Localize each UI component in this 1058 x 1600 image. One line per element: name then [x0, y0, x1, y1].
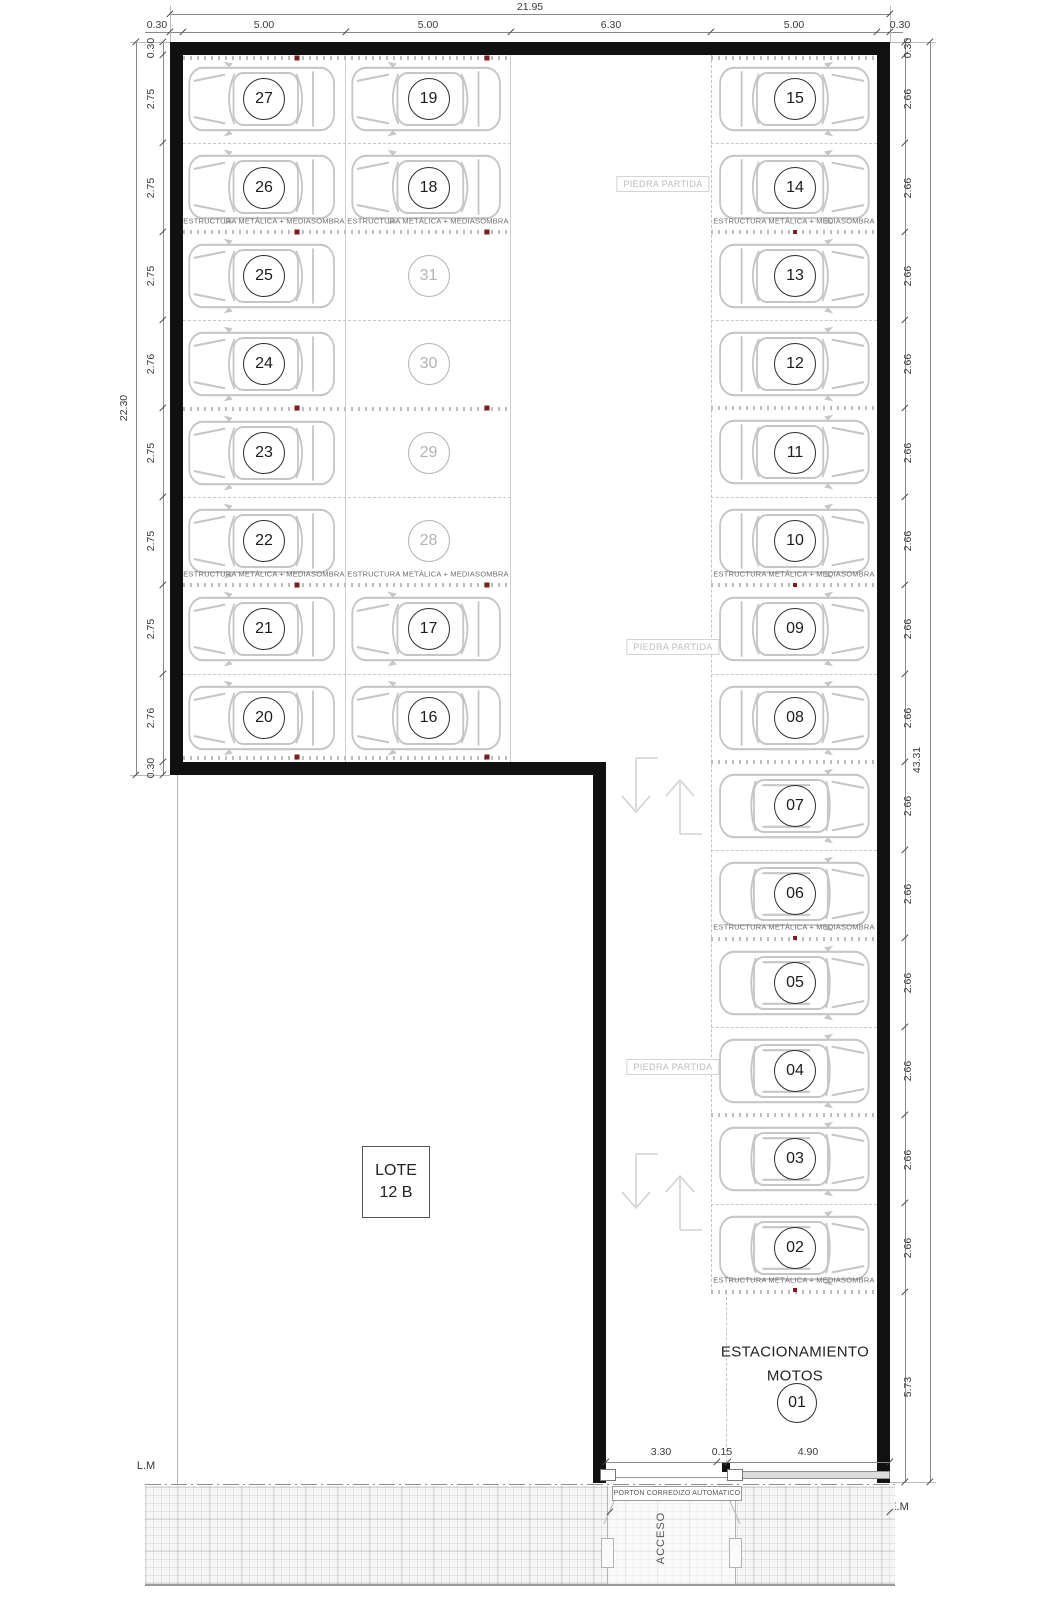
- stall-number-11: 11: [774, 432, 816, 474]
- sidewalk: [145, 1486, 895, 1586]
- parking-stall-05: 05: [711, 939, 877, 1027]
- stall-separator: [183, 674, 511, 675]
- parking-stall-16: 16: [346, 674, 511, 762]
- stall-number-14: 14: [774, 167, 816, 209]
- acceso-label: ACCESO: [655, 1512, 667, 1564]
- dim-label-overall-right: 43.31: [911, 747, 923, 773]
- stall-separator: [183, 320, 511, 321]
- stall-separator: [711, 674, 877, 675]
- lote-label-line1: LOTE: [363, 1160, 429, 1182]
- motos-left-line: [726, 1292, 727, 1462]
- dim-label-overall-left: 22.30: [118, 395, 130, 421]
- dim-label-overall-width: 21.95: [517, 1, 543, 13]
- dim-label: 2.75: [145, 177, 157, 197]
- dim-label-motos-height: 5.73: [902, 1377, 914, 1397]
- column-post: [295, 230, 300, 235]
- stall-number-12: 12: [774, 343, 816, 385]
- column-post: [295, 755, 300, 760]
- parking-stall-29: 29: [346, 409, 511, 497]
- parking-stall-07: 07: [711, 762, 877, 850]
- dim-line-left-overall: [136, 42, 137, 775]
- shade-strip: [183, 756, 511, 760]
- parking-stall-04: 04: [711, 1027, 877, 1115]
- dim-label: 2.66: [902, 1238, 914, 1258]
- dim-label: 5.00: [254, 19, 274, 31]
- dim-label: 2.75: [145, 619, 157, 639]
- lote-label-line2: 12 B: [363, 1182, 429, 1204]
- stall-number-28: 28: [408, 520, 450, 562]
- shade-strip: [183, 230, 511, 234]
- column-post: [793, 936, 797, 940]
- parking-floor-plan: 21.95 0.30 5.00 5.00 6.30 5.00 0.30 22.3…: [0, 0, 1058, 1600]
- parking-stall-21: 21: [183, 585, 345, 673]
- dim-label: 0.30: [145, 758, 157, 778]
- column-post: [295, 406, 300, 411]
- parking-stall-03: 03: [711, 1115, 877, 1203]
- dim-label: 5.00: [418, 19, 438, 31]
- dim-label: 2.75: [145, 442, 157, 462]
- stall-number-20: 20: [243, 697, 285, 739]
- parking-stall-30: 30: [346, 320, 511, 408]
- stall-separator: [183, 497, 511, 498]
- estructura-label: ESTRUCTURA METÁLICA + MEDIASOMBRA: [713, 923, 874, 932]
- shade-strip: [183, 56, 511, 60]
- stall-number-26: 26: [243, 167, 285, 209]
- stall-number-02: 02: [774, 1227, 816, 1269]
- dim-label: 2.66: [902, 707, 914, 727]
- motos-label-line1: ESTACIONAMIENTO: [721, 1344, 869, 1361]
- column-post: [485, 755, 490, 760]
- dim-label: 2.66: [902, 619, 914, 639]
- gate-post-box: [727, 1469, 743, 1481]
- dim-line-bottom-segments: [606, 1462, 890, 1463]
- stall-number-27: 27: [243, 78, 285, 120]
- circulation-arrows-icon: [612, 752, 708, 840]
- stall-separator: [711, 320, 877, 321]
- stall-separator: [711, 1204, 877, 1205]
- dim-label: 4.90: [798, 1446, 818, 1458]
- stall-separator: [711, 1027, 877, 1028]
- dim-label: 2.66: [902, 1061, 914, 1081]
- estructura-label: ESTRUCTURA METÁLICA + MEDIASOMBRA: [713, 570, 874, 579]
- shade-strip: [183, 583, 511, 587]
- shade-strip: [711, 56, 877, 60]
- estructura-label: ESTRUCTURA METÁLICA + MEDIASOMBRA: [713, 1276, 874, 1285]
- parking-stall-15: 15: [711, 55, 877, 143]
- wall-top: [170, 42, 890, 55]
- stall-separator: [711, 850, 877, 851]
- column-post: [793, 230, 797, 234]
- stall-separator: [711, 497, 877, 498]
- stall-number-17: 17: [408, 608, 450, 650]
- parking-stall-11: 11: [711, 408, 877, 496]
- parking-stall-25: 25: [183, 232, 345, 320]
- column-post: [295, 56, 300, 61]
- stall-number-15: 15: [774, 78, 816, 120]
- dim-label: 2.66: [902, 796, 914, 816]
- column-post: [485, 583, 490, 588]
- stall-number-19: 19: [408, 78, 450, 120]
- dim-label: 2.75: [145, 531, 157, 551]
- stall-number-10: 10: [774, 520, 816, 562]
- parking-stall-17: 17: [346, 585, 511, 673]
- dim-label: 2.66: [902, 531, 914, 551]
- stall-number-08: 08: [774, 697, 816, 739]
- stall-number-03: 03: [774, 1138, 816, 1180]
- stall-number-04: 04: [774, 1050, 816, 1092]
- stall-number-06: 06: [774, 873, 816, 915]
- sliding-gate-leaf: [733, 1471, 890, 1479]
- gate-post-box: [600, 1469, 616, 1481]
- parking-stall-19: 19: [346, 55, 511, 143]
- stall-number-29: 29: [408, 432, 450, 474]
- stall-number-09: 09: [774, 608, 816, 650]
- dim-label: 5.00: [784, 19, 804, 31]
- porton-label: PORTON CORREDIZO AUTOMATICO: [614, 1490, 741, 1497]
- stall-number-18: 18: [408, 167, 450, 209]
- parking-stall-31: 31: [346, 232, 511, 320]
- stall-number-24: 24: [243, 343, 285, 385]
- parking-stall-09: 09: [711, 585, 877, 673]
- lot-left-boundary-line: [177, 775, 178, 1484]
- stall-number-07: 07: [774, 785, 816, 827]
- stall-separator: [711, 143, 877, 144]
- dim-line-right-overall: [930, 42, 931, 1482]
- dim-label: 2.66: [902, 884, 914, 904]
- lote-12b-box: LOTE 12 B: [362, 1146, 430, 1218]
- piedra-partida-box: PIEDRA PARTIDA: [626, 639, 719, 655]
- estructura-label: ESTRUCTURA METÁLICA + MEDIASOMBRA: [347, 217, 508, 226]
- parking-stall-12: 12: [711, 320, 877, 408]
- stall-number-31: 31: [408, 255, 450, 297]
- stall-separator: [183, 143, 511, 144]
- stall-number-25: 25: [243, 255, 285, 297]
- estructura-label: ESTRUCTURA METÁLICA + MEDIASOMBRA: [183, 217, 344, 226]
- porton-label-box: PORTON CORREDIZO AUTOMATICO: [612, 1486, 742, 1501]
- stall-number-30: 30: [408, 343, 450, 385]
- column-post: [295, 583, 300, 588]
- estructura-label: ESTRUCTURA METÁLICA + MEDIASOMBRA: [347, 570, 508, 579]
- wall-middle: [593, 762, 606, 1483]
- stall-number-01: 01: [777, 1383, 817, 1423]
- stall-number-text: 01: [788, 1394, 806, 1412]
- column-post: [793, 1288, 797, 1292]
- shade-strip: [711, 1113, 877, 1117]
- dim-label: 2.66: [902, 973, 914, 993]
- dim-label: 6.30: [601, 19, 621, 31]
- curb-mark: [601, 1538, 614, 1568]
- dim-label: 2.66: [902, 442, 914, 462]
- shade-strip: [711, 406, 877, 410]
- wall-right: [877, 42, 890, 1483]
- dim-label: 2.75: [145, 89, 157, 109]
- lm-label: L.M: [137, 1460, 155, 1472]
- dim-label: 0.30: [147, 19, 167, 31]
- dim-label: 0.15: [712, 1446, 732, 1458]
- estructura-label: ESTRUCTURA METÁLICA + MEDIASOMBRA: [713, 217, 874, 226]
- column-post: [485, 230, 490, 235]
- column-post: [485, 406, 490, 411]
- wall-left: [170, 42, 183, 775]
- column-post: [793, 583, 797, 587]
- parking-stall-08: 08: [711, 674, 877, 762]
- piedra-partida-box: PIEDRA PARTIDA: [626, 1059, 719, 1075]
- estructura-label: ESTRUCTURA METÁLICA + MEDIASOMBRA: [183, 570, 344, 579]
- stall-number-21: 21: [243, 608, 285, 650]
- stall-number-23: 23: [243, 432, 285, 474]
- parking-stall-27: 27: [183, 55, 345, 143]
- column-post: [485, 56, 490, 61]
- dim-label: 2.75: [145, 266, 157, 286]
- dim-line-top-overall: [170, 14, 890, 15]
- parking-stall-20: 20: [183, 674, 345, 762]
- stall-number-16: 16: [408, 697, 450, 739]
- parking-stall-13: 13: [711, 232, 877, 320]
- property-line-lm: [145, 1484, 895, 1485]
- dim-label: 2.66: [902, 266, 914, 286]
- piedra-partida-box: PIEDRA PARTIDA: [616, 176, 709, 192]
- dim-label: 2.76: [145, 708, 157, 728]
- dim-label: 2.66: [902, 177, 914, 197]
- wall-left-block-bottom: [170, 762, 606, 775]
- dim-label: 0.30: [145, 38, 157, 58]
- dim-label: 2.66: [902, 354, 914, 374]
- dim-label: 2.66: [902, 1149, 914, 1169]
- stall-number-22: 22: [243, 520, 285, 562]
- shade-strip: [183, 407, 511, 411]
- curb-mark: [729, 1538, 742, 1568]
- dim-label: 2.66: [902, 89, 914, 109]
- motos-label-line2: MOTOS: [767, 1368, 823, 1385]
- parking-stall-24: 24: [183, 320, 345, 408]
- stall-number-05: 05: [774, 962, 816, 1004]
- dim-line-top-segments: [145, 32, 903, 33]
- stall-number-13: 13: [774, 255, 816, 297]
- circulation-arrows-icon: [612, 1148, 708, 1236]
- dim-label: 3.30: [651, 1446, 671, 1458]
- dim-label: 2.76: [145, 354, 157, 374]
- parking-stall-23: 23: [183, 409, 345, 497]
- shade-strip: [711, 760, 877, 764]
